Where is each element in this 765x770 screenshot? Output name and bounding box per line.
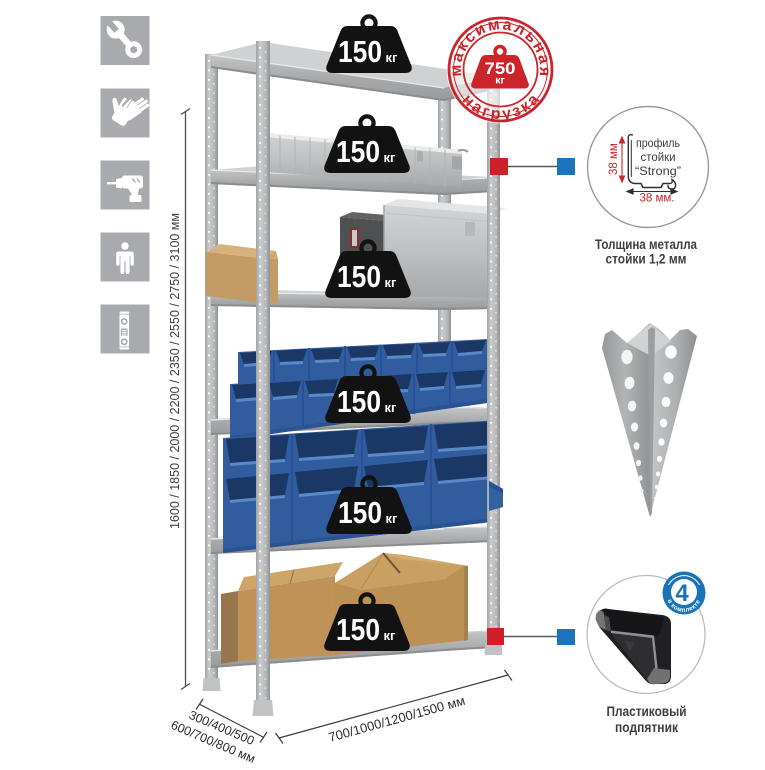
svg-text:кг: кг	[384, 150, 397, 165]
svg-text:кг: кг	[385, 275, 398, 290]
svg-text:подпятник: подпятник	[615, 719, 679, 735]
svg-text:150: 150	[337, 259, 381, 294]
svg-text:4: 4	[675, 580, 689, 607]
svg-text:38 мм.: 38 мм.	[640, 193, 675, 205]
svg-text:кг: кг	[385, 400, 398, 415]
svg-text:Пластиковый: Пластиковый	[607, 703, 687, 719]
svg-text:стойки 1,2 мм: стойки 1,2 мм	[606, 251, 687, 267]
svg-text:кг: кг	[384, 628, 397, 643]
svg-text:“Strong”: “Strong”	[635, 164, 681, 178]
svg-text:кг: кг	[495, 75, 505, 87]
svg-text:150: 150	[337, 384, 381, 419]
svg-text:150: 150	[336, 612, 380, 647]
svg-text:кг: кг	[386, 511, 399, 526]
svg-text:150: 150	[338, 34, 382, 69]
svg-text:профиль: профиль	[636, 136, 680, 150]
svg-text:стойки: стойки	[641, 150, 676, 164]
svg-text:38 мм: 38 мм	[608, 143, 620, 175]
svg-text:1600 / 1850 / 2000 / 2200 / 23: 1600 / 1850 / 2000 / 2200 / 2350 / 2550 …	[167, 213, 182, 529]
svg-text:150: 150	[338, 495, 382, 530]
svg-text:150: 150	[336, 134, 380, 169]
svg-text:кг: кг	[386, 50, 399, 65]
